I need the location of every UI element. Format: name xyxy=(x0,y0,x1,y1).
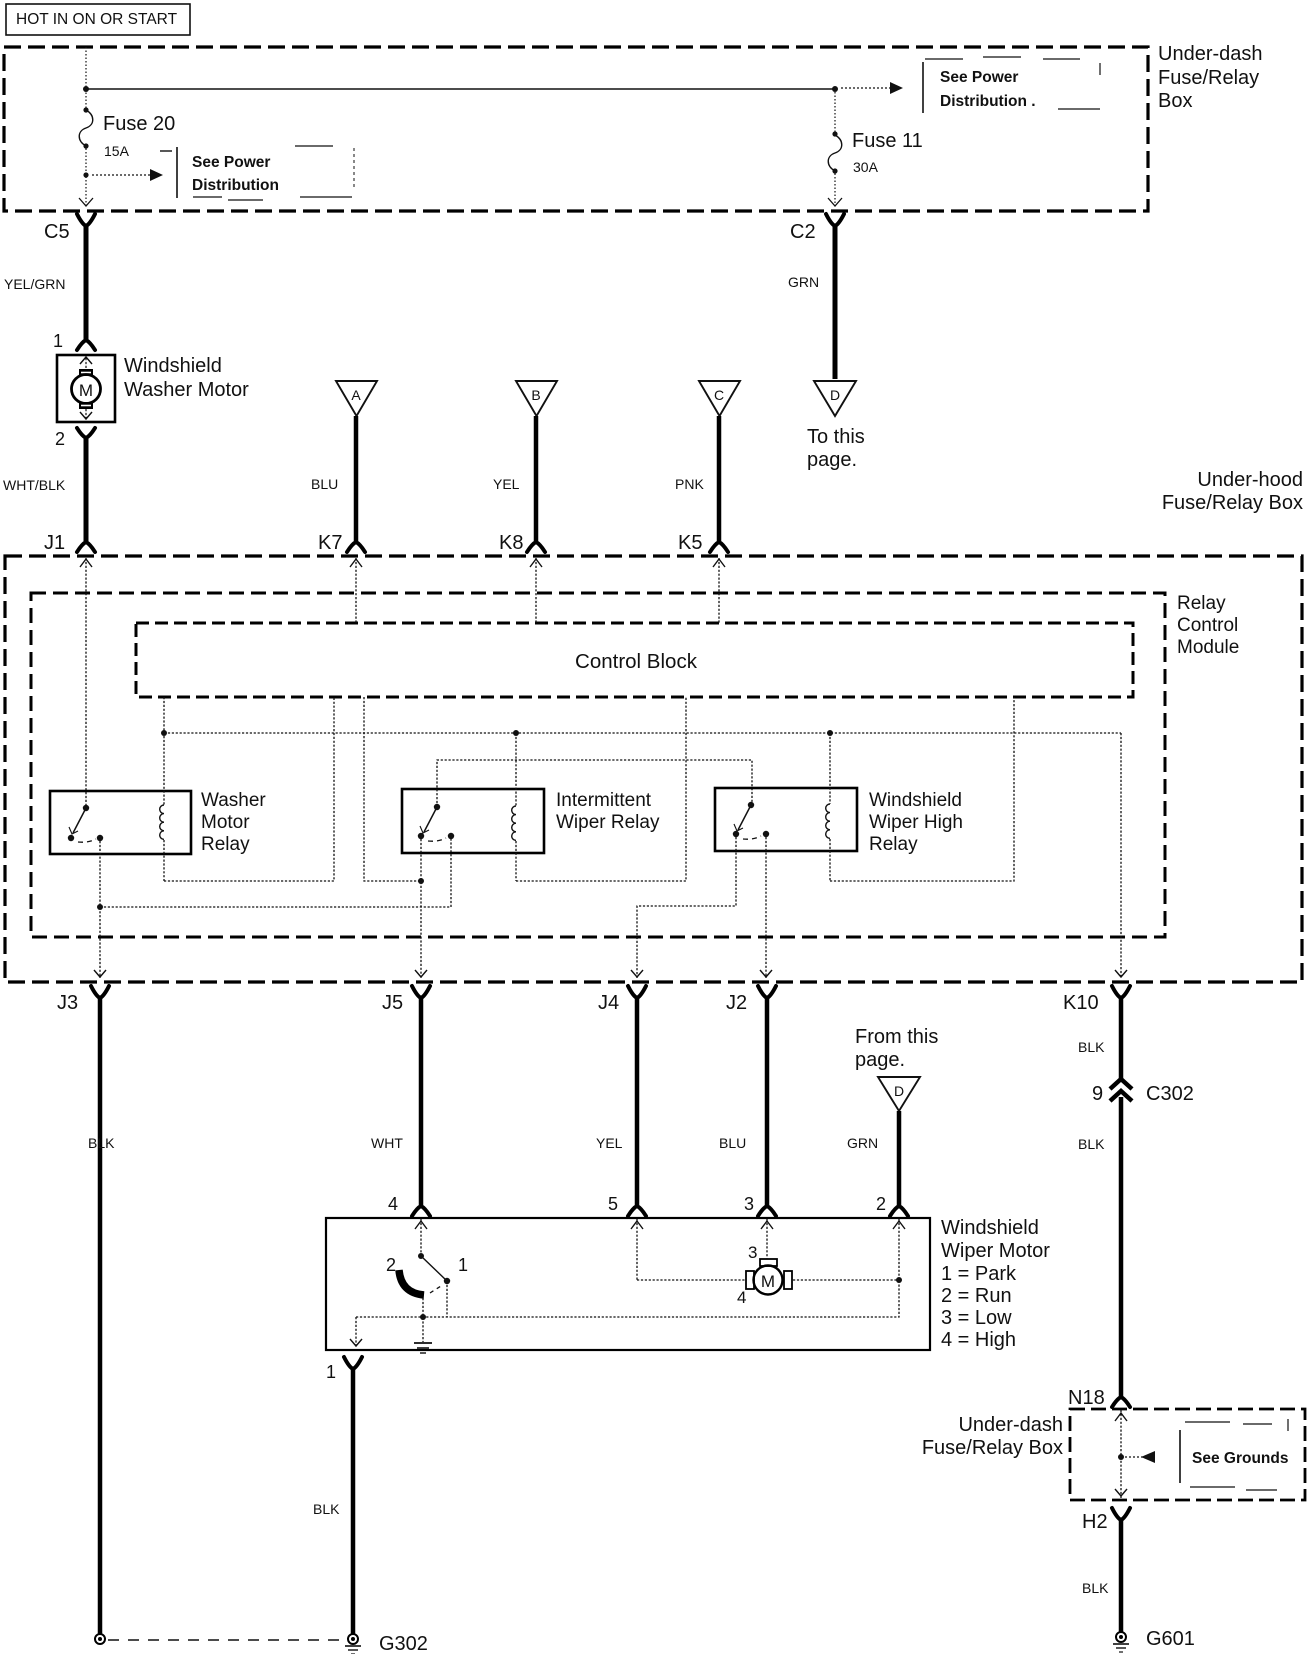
svg-text:page.: page. xyxy=(807,449,857,471)
svg-text:H2: H2 xyxy=(1082,1511,1108,1533)
svg-text:1: 1 xyxy=(53,331,63,351)
svg-text:HOT IN ON OR START: HOT IN ON OR START xyxy=(16,11,178,28)
svg-text:WHT/BLK: WHT/BLK xyxy=(3,477,66,493)
svg-text:9: 9 xyxy=(1092,1083,1103,1105)
svg-text:2: 2 xyxy=(386,1255,396,1275)
svg-text:Wiper Motor: Wiper Motor xyxy=(941,1240,1050,1262)
svg-text:Fuse/Relay Box: Fuse/Relay Box xyxy=(1162,492,1303,514)
svg-text:GRN: GRN xyxy=(847,1135,878,1151)
svg-text:Relay: Relay xyxy=(1177,593,1226,614)
svg-text:BLU: BLU xyxy=(719,1135,746,1151)
svg-text:Wiper Relay: Wiper Relay xyxy=(556,812,660,833)
svg-text:15A: 15A xyxy=(104,143,130,159)
svg-text:Windshield: Windshield xyxy=(124,355,222,377)
svg-text:To this: To this xyxy=(807,426,865,448)
svg-text:1: 1 xyxy=(458,1255,468,1275)
svg-text:Windshield: Windshield xyxy=(941,1217,1039,1239)
svg-text:1 = Park: 1 = Park xyxy=(941,1263,1017,1285)
svg-text:K5: K5 xyxy=(678,532,702,554)
svg-text:Intermittent: Intermittent xyxy=(556,790,652,811)
svg-text:BLK: BLK xyxy=(1078,1039,1105,1055)
svg-text:Relay: Relay xyxy=(869,834,918,855)
svg-text:Under-dash: Under-dash xyxy=(958,1414,1063,1436)
svg-text:5: 5 xyxy=(608,1194,618,1214)
svg-text:Windshield: Windshield xyxy=(869,790,962,811)
svg-text:J3: J3 xyxy=(57,992,78,1014)
svg-text:K7: K7 xyxy=(318,532,342,554)
svg-text:Fuse/Relay: Fuse/Relay xyxy=(1158,67,1259,89)
svg-text:G302: G302 xyxy=(379,1633,428,1654)
svg-text:J1: J1 xyxy=(44,532,65,554)
svg-text:Module: Module xyxy=(1177,637,1239,658)
svg-text:page.: page. xyxy=(855,1049,905,1071)
svg-text:Box: Box xyxy=(1158,90,1192,112)
svg-text:4: 4 xyxy=(737,1288,746,1307)
svg-text:3: 3 xyxy=(748,1243,757,1262)
svg-text:2: 2 xyxy=(55,429,65,449)
svg-text:K8: K8 xyxy=(499,532,523,554)
svg-text:M: M xyxy=(761,1272,775,1291)
svg-text:Distribution .: Distribution . xyxy=(940,93,1036,110)
svg-text:C302: C302 xyxy=(1146,1083,1194,1105)
svg-text:BLK: BLK xyxy=(88,1135,115,1151)
svg-text:BLK: BLK xyxy=(1078,1136,1105,1152)
svg-text:BLK: BLK xyxy=(313,1501,340,1517)
svg-text:M: M xyxy=(79,381,93,400)
svg-text:Control: Control xyxy=(1177,615,1238,636)
svg-text:From this: From this xyxy=(855,1026,938,1048)
svg-text:J2: J2 xyxy=(726,992,747,1014)
svg-text:B: B xyxy=(531,387,540,403)
svg-text:G601: G601 xyxy=(1146,1628,1195,1650)
svg-text:3: 3 xyxy=(744,1194,754,1214)
svg-text:WHT: WHT xyxy=(371,1135,403,1151)
svg-text:Under-hood: Under-hood xyxy=(1197,469,1303,491)
svg-text:4 = High: 4 = High xyxy=(941,1329,1016,1351)
svg-text:C: C xyxy=(714,387,724,403)
svg-text:BLU: BLU xyxy=(311,476,338,492)
svg-text:D: D xyxy=(830,387,840,403)
svg-text:BLK: BLK xyxy=(1082,1580,1109,1596)
svg-text:A: A xyxy=(351,387,361,403)
svg-text:2 = Run: 2 = Run xyxy=(941,1285,1012,1307)
svg-text:See Grounds: See Grounds xyxy=(1192,1450,1288,1467)
svg-text:Control Block: Control Block xyxy=(575,650,698,673)
svg-text:YEL/GRN: YEL/GRN xyxy=(4,276,65,292)
svg-text:Fuse/Relay Box: Fuse/Relay Box xyxy=(922,1437,1063,1459)
svg-text:C5: C5 xyxy=(44,221,70,243)
svg-text:Under-dash: Under-dash xyxy=(1158,43,1263,65)
svg-text:C2: C2 xyxy=(790,221,816,243)
svg-text:J5: J5 xyxy=(382,992,403,1014)
svg-text:Distribution: Distribution xyxy=(192,177,279,194)
svg-text:3 = Low: 3 = Low xyxy=(941,1307,1012,1329)
svg-text:PNK: PNK xyxy=(675,476,704,492)
svg-text:YEL: YEL xyxy=(493,476,520,492)
svg-text:D: D xyxy=(894,1083,904,1099)
svg-text:Fuse 11: Fuse 11 xyxy=(852,130,923,152)
svg-text:Washer: Washer xyxy=(201,790,266,811)
svg-text:N18: N18 xyxy=(1068,1387,1105,1409)
svg-text:Motor: Motor xyxy=(201,812,250,833)
svg-text:1: 1 xyxy=(326,1362,336,1382)
svg-text:Fuse 20: Fuse 20 xyxy=(103,113,175,135)
svg-text:J4: J4 xyxy=(598,992,619,1014)
svg-text:2: 2 xyxy=(876,1194,886,1214)
svg-text:K10: K10 xyxy=(1063,992,1099,1014)
svg-text:Wiper High: Wiper High xyxy=(869,812,963,833)
svg-text:GRN: GRN xyxy=(788,274,819,290)
svg-text:See Power: See Power xyxy=(192,154,270,171)
svg-text:Washer Motor: Washer Motor xyxy=(124,379,249,401)
svg-text:YEL: YEL xyxy=(596,1135,623,1151)
svg-text:30A: 30A xyxy=(853,159,879,175)
svg-text:See Power: See Power xyxy=(940,69,1018,86)
svg-text:4: 4 xyxy=(388,1194,398,1214)
svg-text:Relay: Relay xyxy=(201,834,250,855)
